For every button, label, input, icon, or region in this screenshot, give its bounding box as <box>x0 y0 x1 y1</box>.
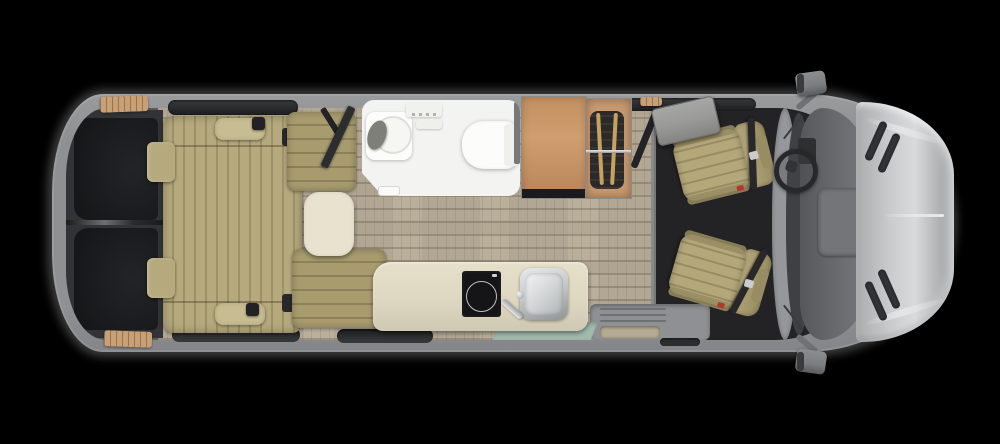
side-mirror-glass <box>797 352 804 371</box>
wardrobe-cabinet <box>521 96 587 199</box>
side-window-top <box>168 100 298 115</box>
wood-floor-grate <box>104 330 153 348</box>
wood-floor-grate <box>100 95 149 113</box>
seatbelt-buckle <box>252 117 265 130</box>
faucet-head <box>516 291 524 299</box>
closet-rod <box>586 150 631 153</box>
shower-control-buttons <box>412 113 438 116</box>
bath-door-handle <box>378 186 400 196</box>
door-track <box>600 308 666 310</box>
rear-door-panel <box>74 118 158 220</box>
rear-door-seam <box>66 220 163 225</box>
steering-wheel <box>774 149 818 193</box>
rear-door-panel <box>74 228 158 330</box>
hood-crease <box>886 214 944 217</box>
seatbelt-buckle <box>246 303 259 316</box>
floorplan-image <box>0 0 1000 444</box>
side-mirror-glass <box>797 74 804 93</box>
dinette-table <box>304 192 354 256</box>
door-track <box>600 314 666 316</box>
entry-step <box>600 326 660 338</box>
side-window-bottom <box>337 329 433 343</box>
door-track <box>600 320 666 322</box>
hanging-closet <box>585 98 632 199</box>
cooktop-burner-ring <box>466 281 497 312</box>
door-armrest-cushion <box>147 258 175 298</box>
wardrobe-base <box>522 189 586 198</box>
door-armrest-cushion <box>147 142 175 182</box>
sofa-seam <box>163 145 302 147</box>
shower-head-bracket <box>416 119 442 129</box>
wood-floor-grate <box>640 97 662 106</box>
wet-bath <box>362 100 520 196</box>
dinette-bench-rear <box>292 249 386 328</box>
hood <box>856 102 954 342</box>
bath-partition <box>514 102 520 164</box>
cooktop-logo <box>492 274 497 277</box>
cab-window-bottom <box>660 338 700 346</box>
kitchen-sink-basin <box>525 273 563 315</box>
